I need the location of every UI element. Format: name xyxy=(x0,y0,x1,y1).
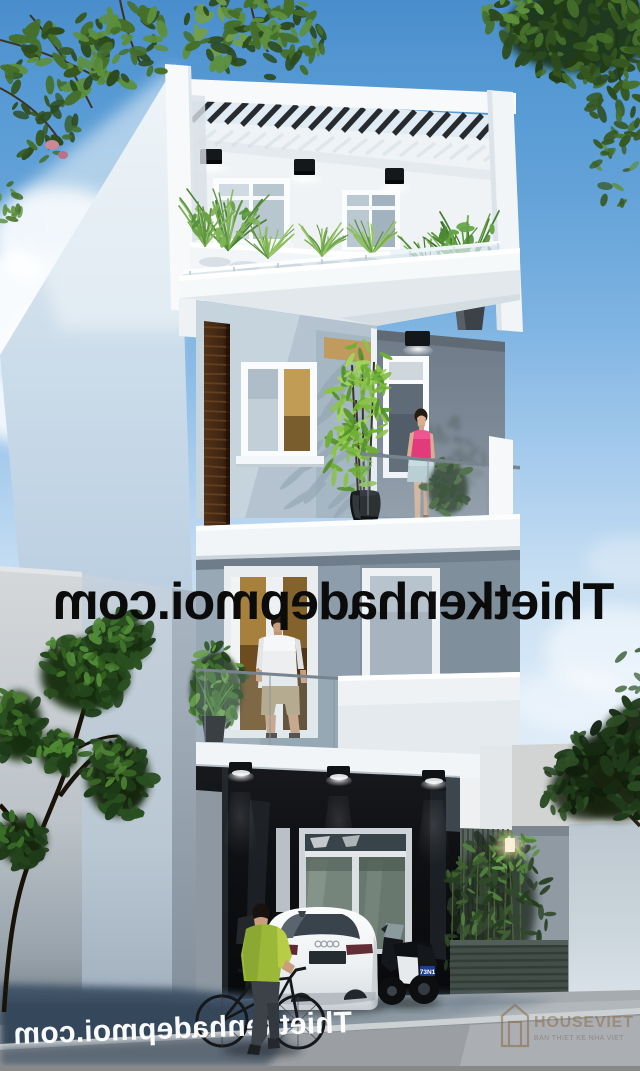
svg-text:Thietkenhadepmoi.com: Thietkenhadepmoi.com xyxy=(54,573,615,631)
svg-text:HOUSEVIET: HOUSEVIET xyxy=(534,1014,634,1031)
svg-text:73N1: 73N1 xyxy=(420,969,436,976)
svg-text:BAN THIET KE NHA VIET: BAN THIET KE NHA VIET xyxy=(534,1035,624,1042)
